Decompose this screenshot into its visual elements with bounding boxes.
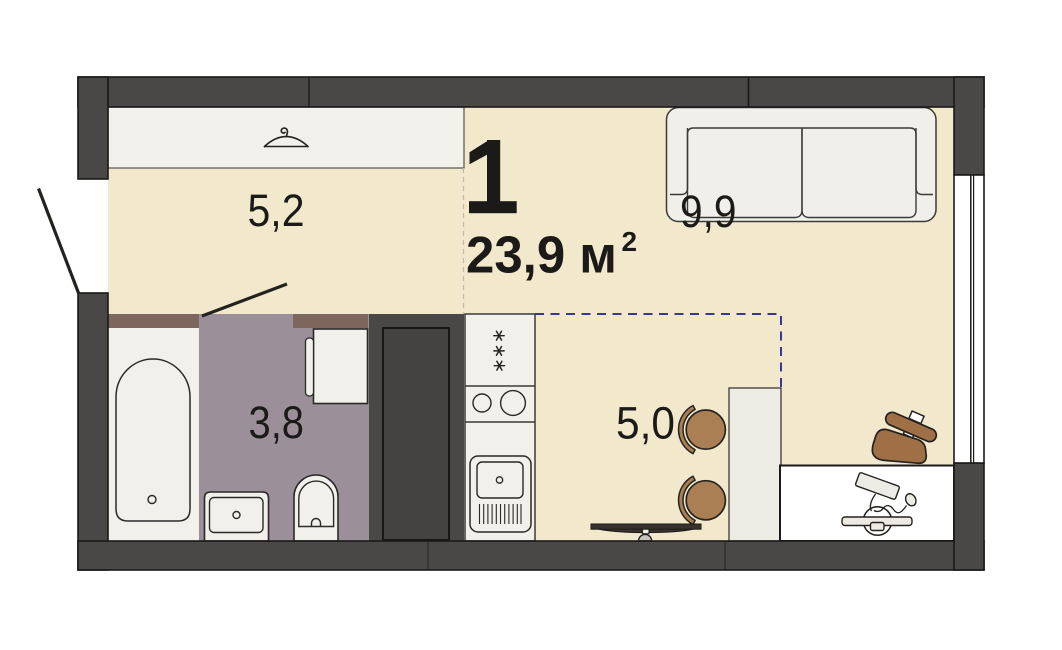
svg-text:9,9: 9,9 — [680, 186, 737, 237]
svg-text:5,2: 5,2 — [248, 185, 305, 236]
svg-text:3,8: 3,8 — [249, 397, 305, 448]
svg-text:5,0: 5,0 — [616, 398, 675, 449]
svg-text:23,9 м: 23,9 м — [466, 227, 617, 285]
svg-text:2: 2 — [622, 226, 638, 257]
